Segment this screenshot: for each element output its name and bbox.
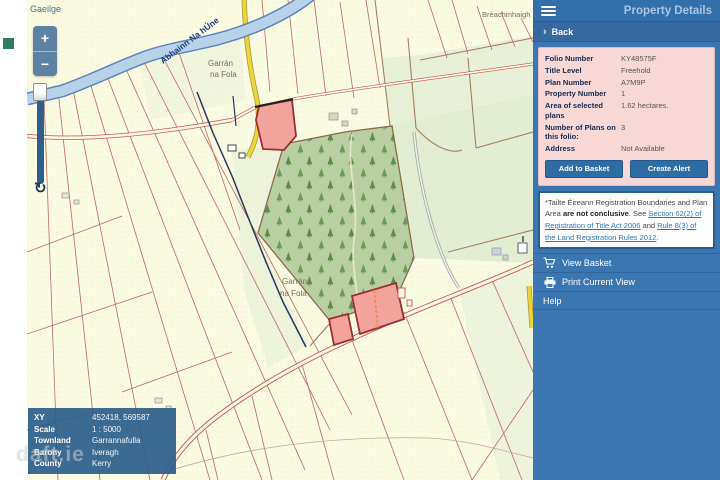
info-value: Iveragh bbox=[92, 447, 119, 459]
info-value: 452418, 569587 bbox=[92, 412, 150, 424]
svg-text:na Fola: na Fola bbox=[280, 289, 307, 298]
hamburger-menu-icon[interactable] bbox=[541, 4, 556, 18]
chevron-right-icon: › bbox=[543, 26, 547, 38]
info-label: XY bbox=[34, 412, 92, 424]
selected-plan-north[interactable] bbox=[256, 100, 296, 150]
zoom-slider-handle[interactable] bbox=[33, 83, 47, 101]
refresh-icon[interactable]: ↻ bbox=[34, 181, 47, 196]
zoom-slider-track[interactable] bbox=[37, 92, 44, 184]
neighbor-townland-label: Bréachmhaigh bbox=[482, 10, 530, 19]
zoom-in-button[interactable]: + bbox=[33, 26, 57, 52]
townland-label-center: Garrán bbox=[282, 277, 307, 286]
detail-row: Number of Plans on this folio:3 bbox=[545, 123, 708, 143]
detail-row: Area of selected plans1.62 hectares. bbox=[545, 101, 708, 121]
add-to-basket-button[interactable]: Add to Basket bbox=[545, 160, 623, 178]
svg-text:na Fola: na Fola bbox=[210, 70, 237, 79]
zoom-out-button[interactable]: − bbox=[33, 52, 57, 77]
detail-row: Title LevelFreehold bbox=[545, 66, 708, 76]
info-value: Kerry bbox=[92, 458, 111, 470]
info-label: Barony bbox=[34, 447, 92, 459]
selected-plan-south-small[interactable] bbox=[329, 314, 353, 345]
detail-row: Plan NumberA7M9P bbox=[545, 78, 708, 88]
green-square-marker bbox=[3, 38, 14, 49]
detail-row: Property Number1 bbox=[545, 89, 708, 99]
view-basket-item[interactable]: View Basket bbox=[533, 253, 720, 272]
back-button[interactable]: › Back bbox=[533, 22, 720, 42]
info-label: County bbox=[34, 458, 92, 470]
townland-label-top: Garrán bbox=[208, 59, 233, 68]
panel-title: Property Details bbox=[556, 5, 720, 17]
folio-details-card: Folio NumberKY48575F Title LevelFreehold… bbox=[538, 47, 715, 186]
language-toggle-link[interactable]: Gaeilge bbox=[30, 4, 61, 14]
cart-icon bbox=[543, 257, 556, 269]
coordinates-info-box: XY452418, 569587 Scale1 : 5000 TownlandG… bbox=[28, 408, 176, 474]
printer-icon bbox=[543, 277, 556, 288]
detail-row: Folio NumberKY48575F bbox=[545, 54, 708, 64]
detail-row: AddressNot Available bbox=[545, 144, 708, 154]
create-alert-button[interactable]: Create Alert bbox=[630, 160, 708, 178]
app-window: Abhainn Na hÚne Garrán na Fola Garrán na… bbox=[0, 0, 720, 480]
print-current-view-item[interactable]: Print Current View bbox=[533, 272, 720, 291]
panel-menu: View Basket Print Current View Help bbox=[533, 253, 720, 310]
property-details-panel: Property Details › Back Folio NumberKY48… bbox=[533, 0, 720, 480]
info-value: Garrannafulla bbox=[92, 435, 140, 447]
zoom-controls: + − bbox=[33, 26, 57, 76]
help-item[interactable]: Help bbox=[533, 291, 720, 310]
info-label: Scale bbox=[34, 424, 92, 436]
info-value: 1 : 5000 bbox=[92, 424, 121, 436]
panel-header: Property Details bbox=[533, 0, 720, 22]
info-label: Townland bbox=[34, 435, 92, 447]
disclaimer-note: *Tailte Éireann Registration Boundaries … bbox=[538, 191, 715, 250]
